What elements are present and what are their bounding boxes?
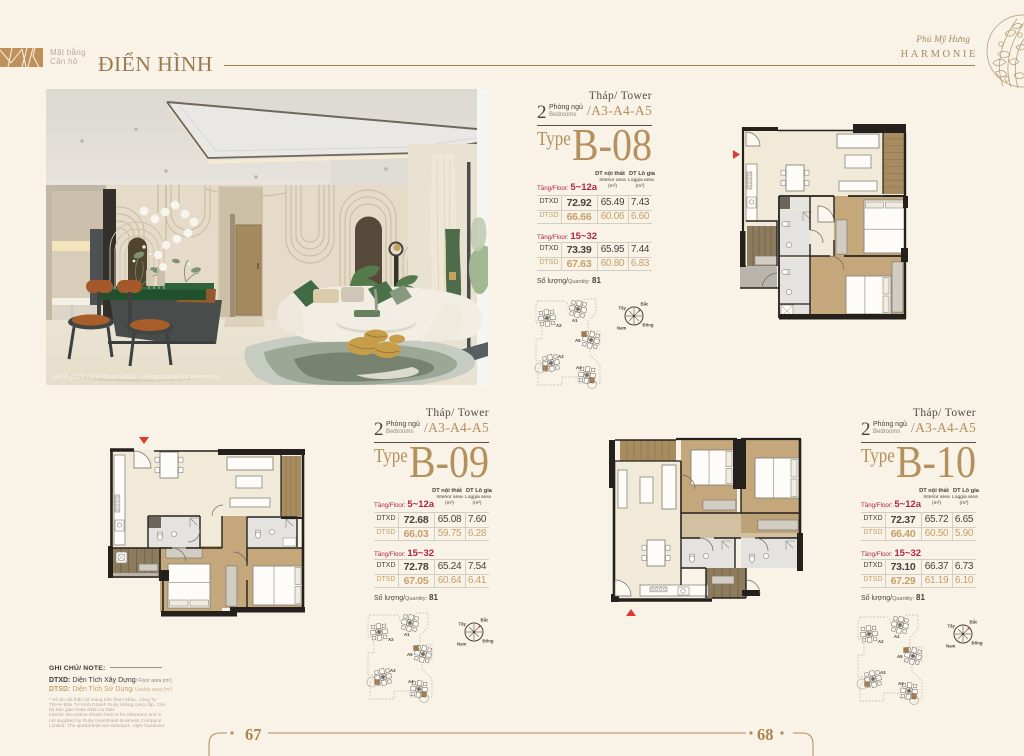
svg-text:Hình phối cảnh tham khảo - Per: Hình phối cảnh tham khảo - Perspective f…	[54, 373, 220, 381]
svg-text:A5: A5	[407, 652, 413, 657]
svg-text:Tây: Tây	[948, 624, 956, 629]
svg-text:Nam: Nam	[617, 326, 626, 331]
svg-text:A2: A2	[388, 637, 394, 642]
svg-text:Nam: Nam	[946, 644, 955, 649]
svg-text:Đông: Đông	[643, 323, 654, 328]
svg-text:A4: A4	[576, 365, 582, 370]
svg-text:Bắc: Bắc	[970, 620, 978, 625]
svg-text:A3: A3	[390, 668, 396, 673]
svg-text:A3: A3	[880, 670, 886, 675]
svg-text:A1: A1	[572, 318, 578, 323]
svg-text:Nam: Nam	[457, 642, 466, 647]
svg-text:A1: A1	[894, 634, 900, 639]
svg-text:A2: A2	[556, 323, 562, 328]
svg-text:67: 67	[245, 725, 262, 744]
svg-text:68: 68	[757, 725, 774, 744]
svg-text:A1: A1	[404, 632, 410, 637]
svg-text:Đông: Đông	[483, 639, 494, 644]
svg-text:Đông: Đông	[972, 641, 983, 646]
svg-text:Tây: Tây	[619, 306, 627, 311]
svg-text:A5: A5	[575, 338, 581, 343]
svg-text:A5: A5	[897, 654, 903, 659]
svg-text:A4: A4	[408, 679, 414, 684]
svg-text:Tây: Tây	[459, 622, 467, 627]
svg-text:Bắc: Bắc	[641, 302, 649, 307]
svg-text:Bắc: Bắc	[481, 618, 489, 623]
svg-text:A3: A3	[558, 354, 564, 359]
svg-text:A4: A4	[898, 681, 904, 686]
svg-text:A2: A2	[878, 639, 884, 644]
